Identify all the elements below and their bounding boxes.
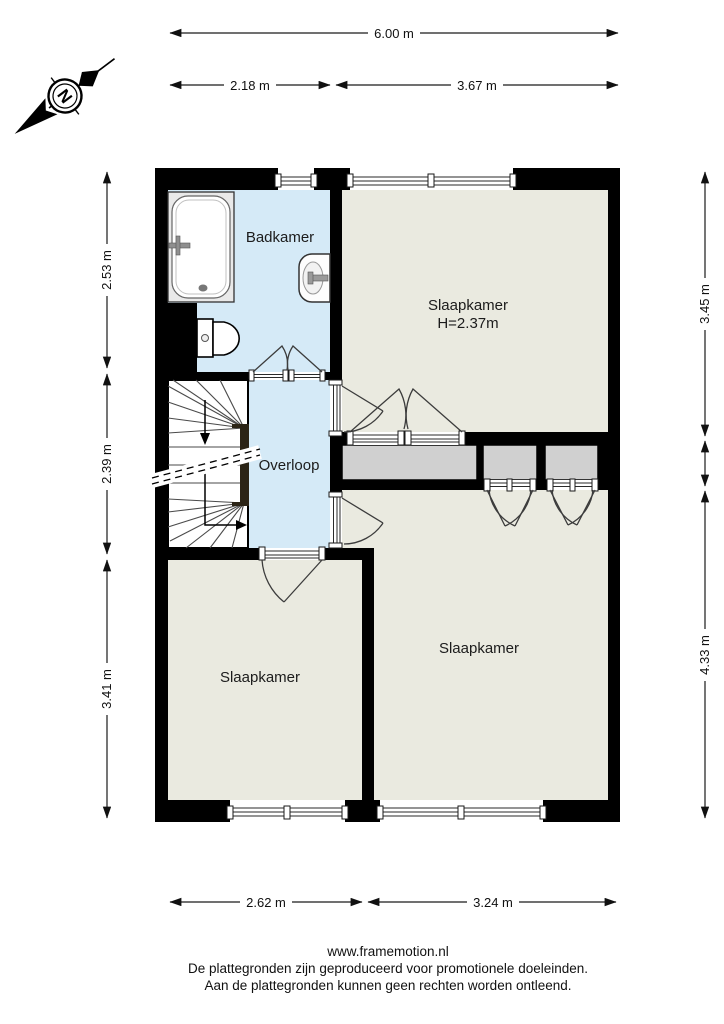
bathtub-icon xyxy=(168,192,234,302)
svg-text:2.18 m: 2.18 m xyxy=(230,78,270,93)
room-label-overloop: Overloop xyxy=(259,457,320,474)
floorplan-page: N xyxy=(0,0,724,1024)
svg-text:6.00 m: 6.00 m xyxy=(374,26,414,41)
dimension-right-bottom: 4.33 m xyxy=(696,491,714,818)
room-label-slaapkamer-left: Slaapkamer xyxy=(220,669,300,686)
svg-text:3.24 m: 3.24 m xyxy=(473,895,513,910)
svg-text:2.62 m: 2.62 m xyxy=(246,895,286,910)
window-bedroom-top xyxy=(347,168,516,190)
dimension-top-total: 6.00 m xyxy=(170,24,618,41)
staircase xyxy=(152,380,260,548)
room-label-slaapkamer-right: Slaapkamer xyxy=(439,640,519,657)
washbasin-icon xyxy=(299,254,330,302)
svg-text:3.41 m: 3.41 m xyxy=(99,669,114,709)
footer-disclaimer-line2: Aan de plattegronden kunnen geen rechten… xyxy=(204,978,571,993)
dimension-right-top: 3.45 m xyxy=(696,172,714,436)
window-bedroom-left-bottom xyxy=(227,800,348,822)
svg-text:3.67 m: 3.67 m xyxy=(457,78,497,93)
window-bedroom-right-bottom xyxy=(377,800,546,822)
compass-icon: N xyxy=(1,40,129,152)
dimension-top-left: 2.18 m xyxy=(170,76,330,93)
dimension-left-middle: 2.39 m xyxy=(98,374,116,554)
dimension-bottom-left: 2.62 m xyxy=(170,893,362,910)
footer-disclaimer-line1: De plattegronden zijn geproduceerd voor … xyxy=(188,961,588,976)
svg-text:2.39 m: 2.39 m xyxy=(99,444,114,484)
footer-website: www.framemotion.nl xyxy=(326,944,449,959)
closet-middle xyxy=(483,445,537,480)
room-label-badkamer: Badkamer xyxy=(246,229,314,246)
svg-text:4.33 m: 4.33 m xyxy=(697,635,712,675)
dimension-left-top: 2.53 m xyxy=(98,172,116,368)
svg-text:2.53 m: 2.53 m xyxy=(99,250,114,290)
floorplan-canvas: N xyxy=(0,0,724,1024)
svg-text:3.45 m: 3.45 m xyxy=(697,284,712,324)
room-label-slaapkamer-top: Slaapkamer xyxy=(428,297,508,314)
closet-right xyxy=(545,445,598,480)
window-bathroom-top xyxy=(275,168,317,190)
dimension-bottom-right: 3.24 m xyxy=(368,893,616,910)
dimension-top-right: 3.67 m xyxy=(336,76,618,93)
dimension-left-bottom: 3.41 m xyxy=(98,560,116,818)
room-label-slaapkamer-top-height: H=2.37m xyxy=(437,315,498,332)
closet-long xyxy=(342,445,477,480)
